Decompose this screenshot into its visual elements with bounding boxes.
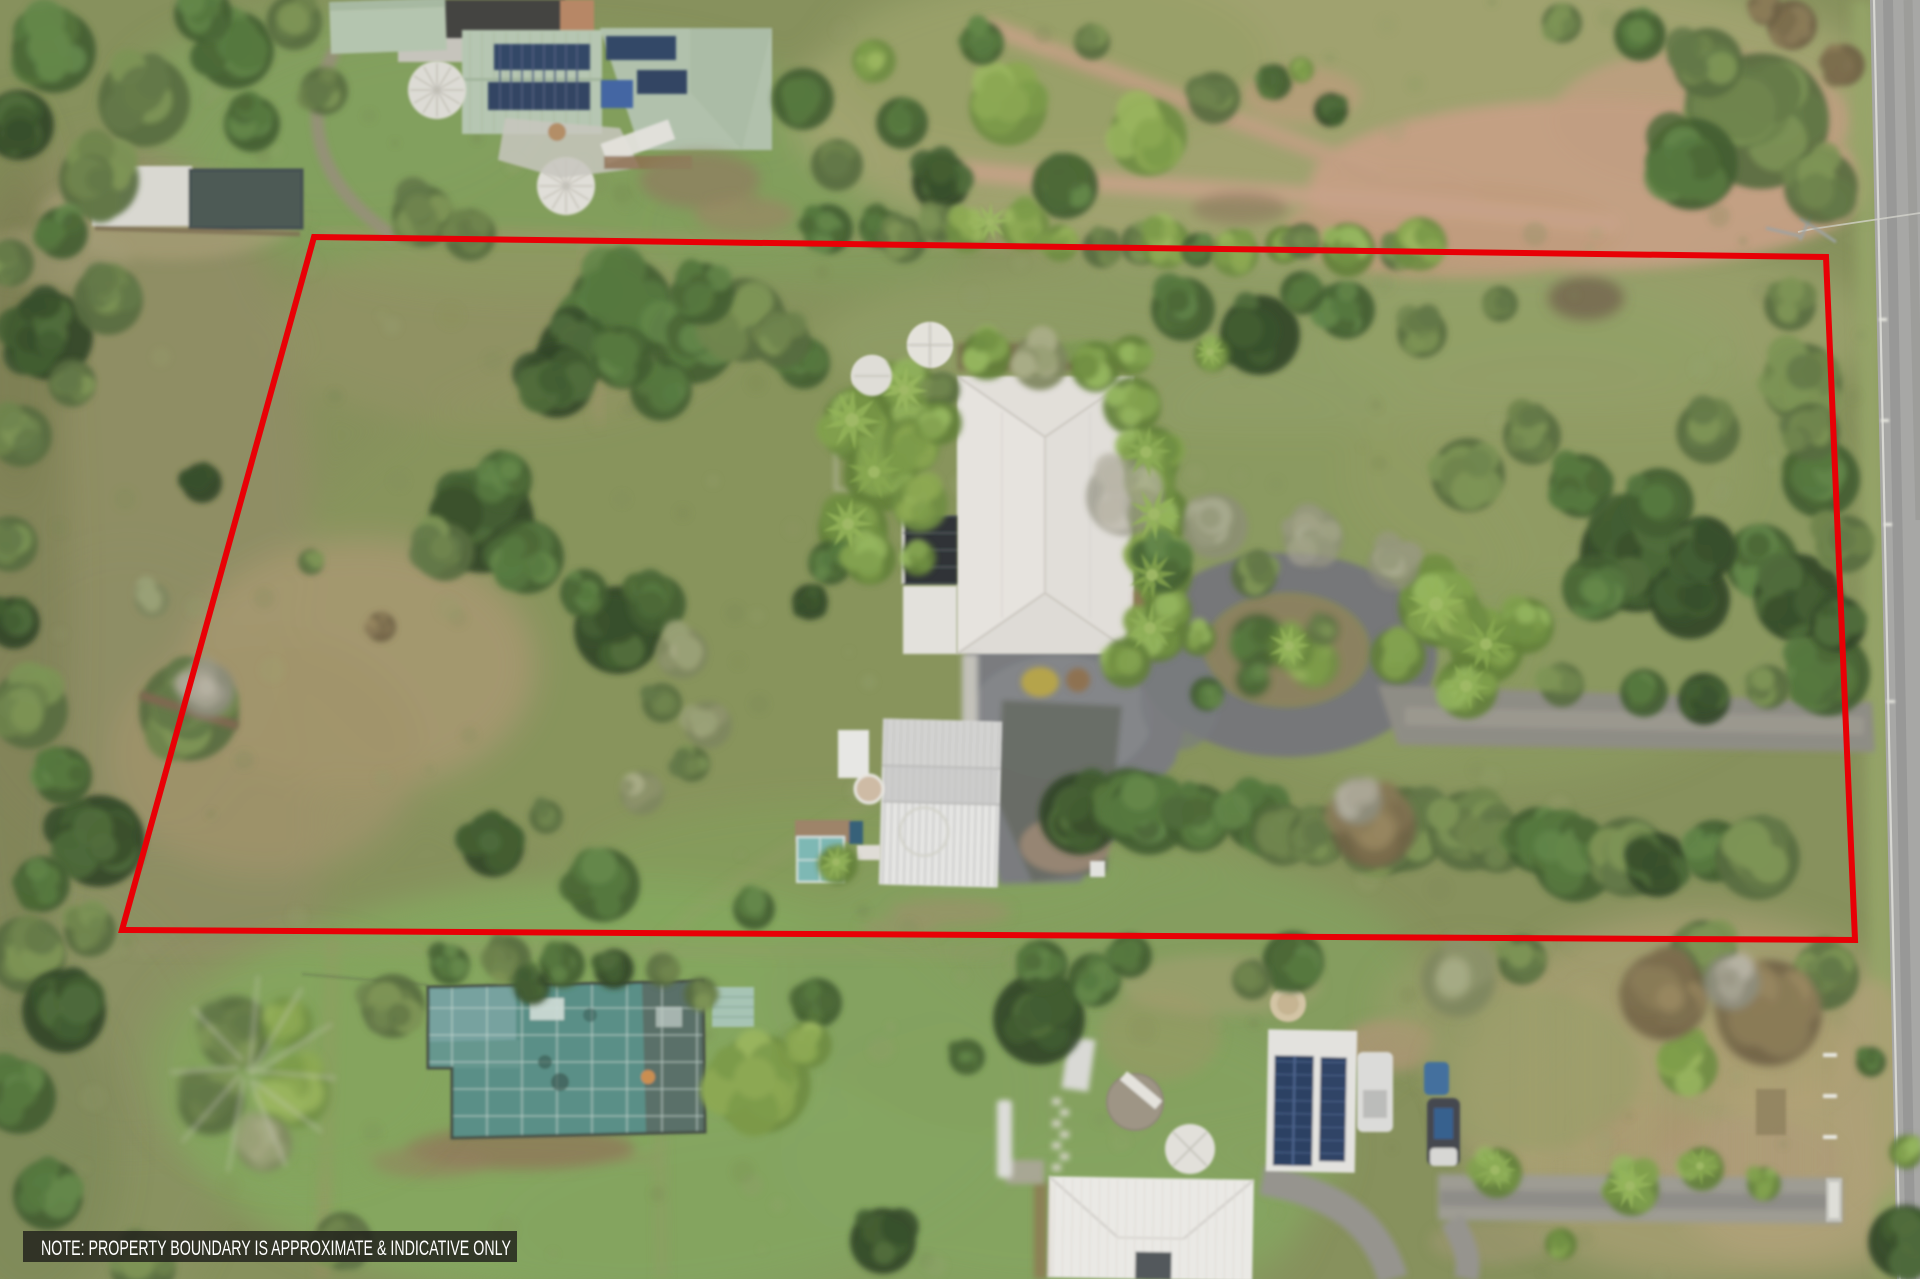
svg-text:NOTE: PROPERTY BOUNDARY IS APP: NOTE: PROPERTY BOUNDARY IS APPROXIMATE &… <box>41 1236 511 1260</box>
